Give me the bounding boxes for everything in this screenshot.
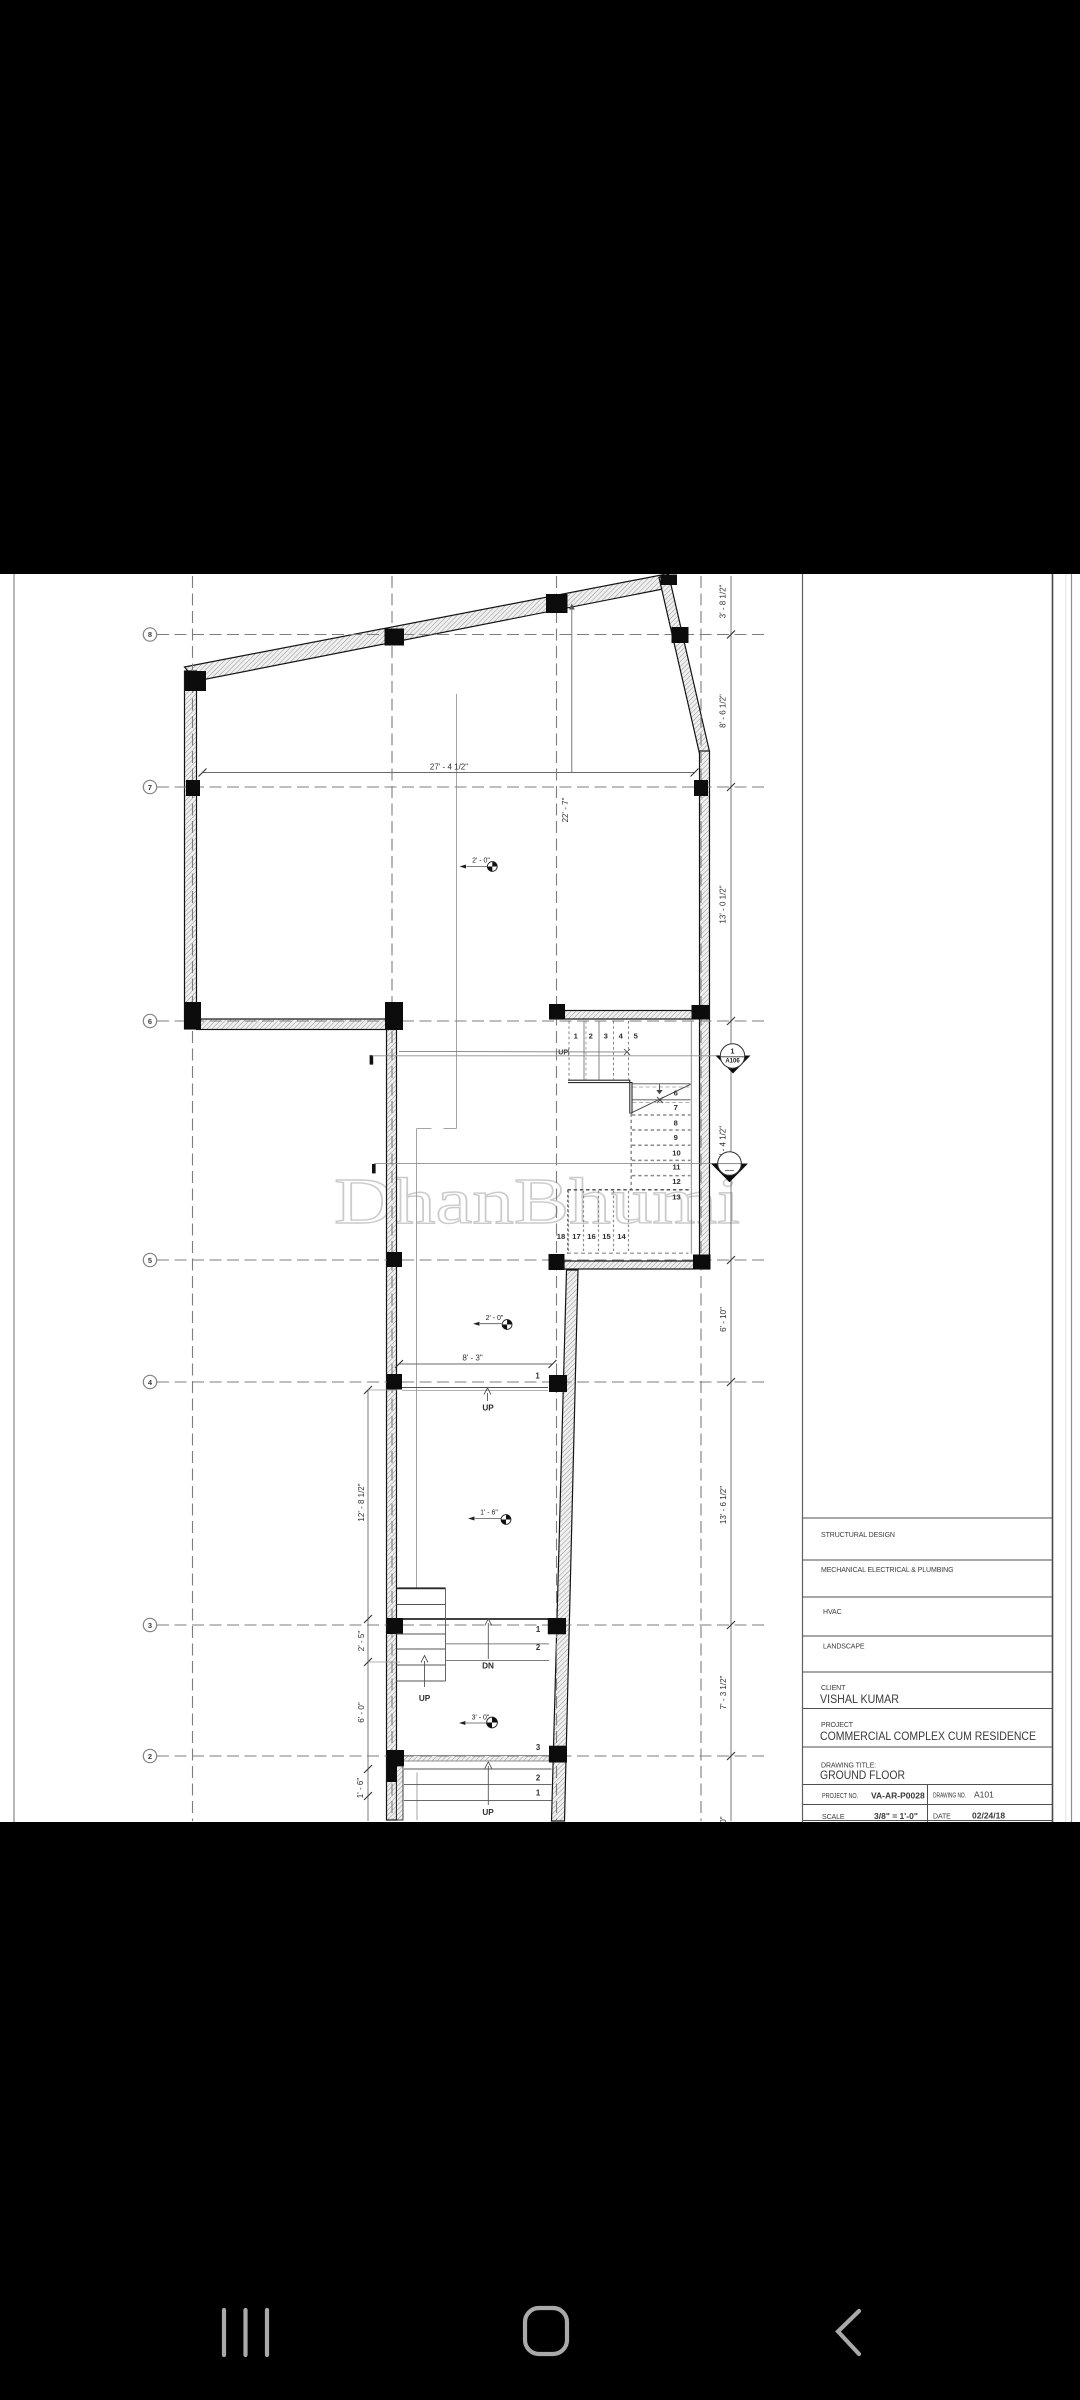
svg-text:6: 6 — [148, 1017, 152, 1026]
svg-text:7' - 3 1/2": 7' - 3 1/2" — [719, 1675, 728, 1709]
svg-text:12: 12 — [672, 1177, 680, 1186]
svg-text:PROJECT: PROJECT — [821, 1722, 854, 1729]
svg-text:2' - 0": 2' - 0" — [472, 858, 490, 865]
svg-text:1: 1 — [536, 1625, 541, 1634]
svg-text:3: 3 — [148, 1621, 152, 1630]
svg-text:12' - 8 1/2": 12' - 8 1/2" — [357, 1483, 366, 1521]
svg-text:PROJECT NO.: PROJECT NO. — [822, 1793, 858, 1800]
svg-text:8: 8 — [674, 1119, 678, 1128]
svg-text:8' - 6 1/2": 8' - 6 1/2" — [719, 694, 728, 728]
svg-text:UP: UP — [482, 1808, 494, 1817]
svg-text:6' - 10": 6' - 10" — [719, 1307, 728, 1332]
svg-text:16: 16 — [587, 1232, 595, 1241]
svg-text:6: 6 — [674, 1089, 678, 1098]
svg-text:CLIENT: CLIENT — [821, 1685, 846, 1692]
svg-text:13: 13 — [672, 1193, 680, 1202]
svg-text:17: 17 — [572, 1232, 580, 1241]
svg-text:2: 2 — [148, 1752, 152, 1761]
svg-text:13' - 6 1/2": 13' - 6 1/2" — [719, 1486, 728, 1524]
svg-text:0": 0" — [719, 1816, 728, 1822]
svg-text:4: 4 — [619, 1032, 624, 1041]
svg-text:1: 1 — [535, 1372, 540, 1381]
svg-text:A106: A106 — [725, 1059, 740, 1065]
svg-text:9: 9 — [674, 1133, 678, 1142]
svg-text:2' - 0": 2' - 0" — [486, 1315, 504, 1322]
svg-text:8: 8 — [148, 630, 152, 639]
svg-text:3: 3 — [536, 1743, 541, 1752]
svg-text:22' - 7": 22' - 7" — [561, 797, 570, 822]
svg-text:27' - 4 1/2": 27' - 4 1/2" — [430, 763, 468, 772]
svg-text:UP: UP — [482, 1404, 494, 1413]
svg-text:SCALE: SCALE — [822, 1814, 845, 1821]
svg-text:5: 5 — [634, 1032, 639, 1041]
svg-text:18: 18 — [557, 1232, 565, 1241]
svg-text:3' - 8 1/2": 3' - 8 1/2" — [719, 584, 728, 618]
svg-text:DN: DN — [482, 1662, 494, 1671]
svg-text:UP: UP — [419, 1694, 431, 1703]
svg-text:14: 14 — [617, 1232, 626, 1241]
svg-text:7: 7 — [148, 783, 152, 792]
svg-text:1: 1 — [731, 1049, 735, 1056]
svg-text:1' - 6": 1' - 6" — [480, 1510, 498, 1517]
svg-text:10: 10 — [672, 1149, 680, 1158]
svg-text:2' - 5": 2' - 5" — [357, 1631, 366, 1652]
svg-text:02/24/18: 02/24/18 — [972, 1811, 1005, 1821]
svg-text:VA-AR-P0028: VA-AR-P0028 — [871, 1791, 925, 1801]
svg-text:A101: A101 — [974, 1790, 994, 1800]
svg-text:7: 7 — [674, 1103, 678, 1112]
svg-text:COMMERCIAL COMPLEX CUM RESIDEN: COMMERCIAL COMPLEX CUM RESIDENCE — [820, 1729, 1036, 1743]
svg-text:5: 5 — [148, 1256, 152, 1265]
svg-text:3: 3 — [604, 1032, 608, 1041]
svg-text:15: 15 — [602, 1232, 611, 1241]
svg-text:STRUCTURAL DESIGN: STRUCTURAL DESIGN — [821, 1532, 895, 1539]
svg-text:2: 2 — [589, 1032, 593, 1041]
svg-text:3/8" = 1'-0": 3/8" = 1'-0" — [874, 1811, 918, 1821]
svg-text:2: 2 — [536, 1774, 541, 1783]
svg-text:1' - 6": 1' - 6" — [356, 1778, 365, 1799]
svg-text:GROUND FLOOR: GROUND FLOOR — [820, 1768, 905, 1782]
svg-text:2: 2 — [536, 1643, 541, 1652]
svg-text:1: 1 — [536, 1789, 541, 1798]
svg-text:DRAWING NO.: DRAWING NO. — [933, 1793, 966, 1800]
svg-text:13' - 0 1/2": 13' - 0 1/2" — [719, 885, 728, 923]
svg-text:6' - 0": 6' - 0" — [357, 1702, 366, 1723]
svg-text:DATE: DATE — [933, 1814, 951, 1821]
svg-text:HVAC: HVAC — [823, 1609, 842, 1616]
svg-text:8' - 3": 8' - 3" — [462, 1354, 483, 1363]
svg-text:MECHANICAL ELECTRICAL & PLUMBI: MECHANICAL ELECTRICAL & PLUMBING — [821, 1567, 953, 1574]
svg-text:VISHAL KUMAR: VISHAL KUMAR — [820, 1692, 899, 1706]
svg-text:LANDSCAPE: LANDSCAPE — [823, 1644, 865, 1651]
svg-text:1: 1 — [574, 1032, 579, 1041]
